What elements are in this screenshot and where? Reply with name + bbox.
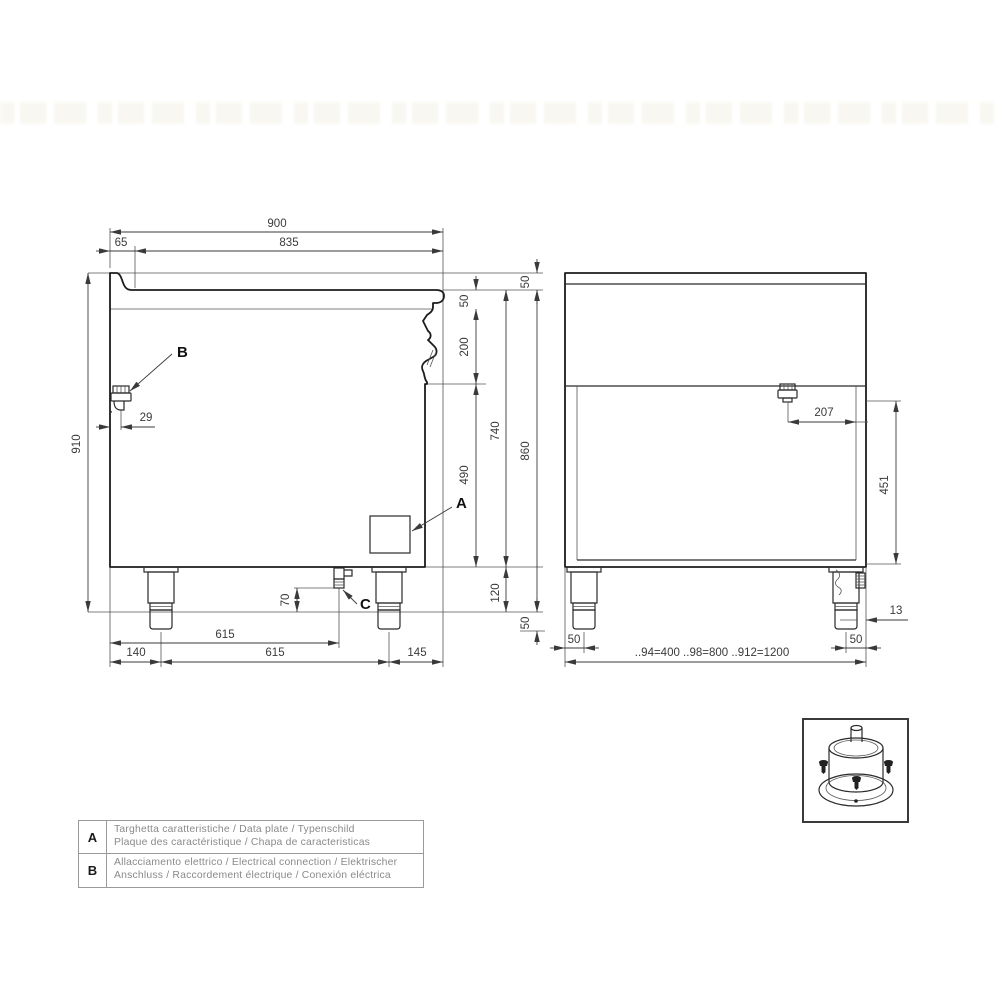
dim-foot-offset-left: 140: [126, 647, 145, 659]
dim-under-top-height: 740: [490, 421, 502, 440]
electrical-gland-side: [110, 386, 131, 412]
drain-connector: [334, 568, 352, 588]
data-plate-box: [370, 516, 410, 553]
foot-detail: [803, 719, 908, 822]
legend-b-line2: Anschluss / Raccordement électrique / Co…: [114, 870, 397, 883]
technical-drawing-page: B A C 900 65 835: [0, 0, 1000, 1000]
dim-work-height: 860: [520, 441, 532, 460]
label-b: B: [177, 344, 188, 361]
legend-a-line2: Plaque des caractéristique / Chapa de ca…: [114, 837, 370, 850]
dim-feet-span: 615: [265, 647, 284, 659]
label-a: A: [456, 495, 467, 512]
electrical-gland-rear: [778, 384, 797, 402]
dim-rear-gland-height: 451: [879, 475, 891, 494]
dim-drain-offset: 615: [215, 629, 234, 641]
dim-counter-edge: 50: [459, 295, 471, 308]
dim-rear-gland-offset: 207: [814, 407, 833, 419]
dim-left-edge: 65: [115, 237, 128, 249]
dim-drain-height: 70: [280, 594, 292, 607]
dim-rear-width-note: ..94=400 ..98=800 ..912=1200: [635, 647, 789, 659]
legend-key-a: A: [79, 821, 107, 853]
legend-row-b: B Allacciamento elettrico / Electrical c…: [79, 854, 423, 886]
dim-panel-height: 200: [459, 337, 471, 356]
legend-row-a: A Targhetta caratteristiche / Data plate…: [79, 821, 423, 854]
dim-top-width: 835: [279, 237, 298, 249]
dim-total-height: 910: [71, 434, 83, 453]
dim-foot-adjust: 50: [520, 617, 532, 630]
legend-b-line1: Allacciamento elettrico / Electrical con…: [114, 857, 397, 870]
dim-total-width: 900: [267, 218, 286, 230]
dim-thread-width: 13: [890, 605, 903, 617]
dim-rear-foot-inset-right: 50: [850, 634, 863, 646]
foot-thread-detail: [836, 570, 866, 595]
legend-a-line1: Targhetta caratteristiche / Data plate /…: [114, 824, 370, 837]
rear-view: 207 451 13 50 50 ..94=400: [550, 273, 908, 667]
dim-rear-foot-inset-left: 50: [568, 634, 581, 646]
dim-splash-height: 50: [520, 276, 532, 289]
side-view: B A C 900 65 835: [71, 218, 545, 667]
legend-key-b: B: [79, 854, 107, 886]
dim-foot-height: 120: [490, 583, 502, 602]
dim-body-height: 490: [459, 465, 471, 484]
dim-gland-offset: 29: [140, 412, 153, 424]
label-c: C: [360, 596, 371, 613]
dim-foot-offset-right: 145: [407, 647, 426, 659]
legend-table: A Targhetta caratteristiche / Data plate…: [78, 820, 424, 888]
